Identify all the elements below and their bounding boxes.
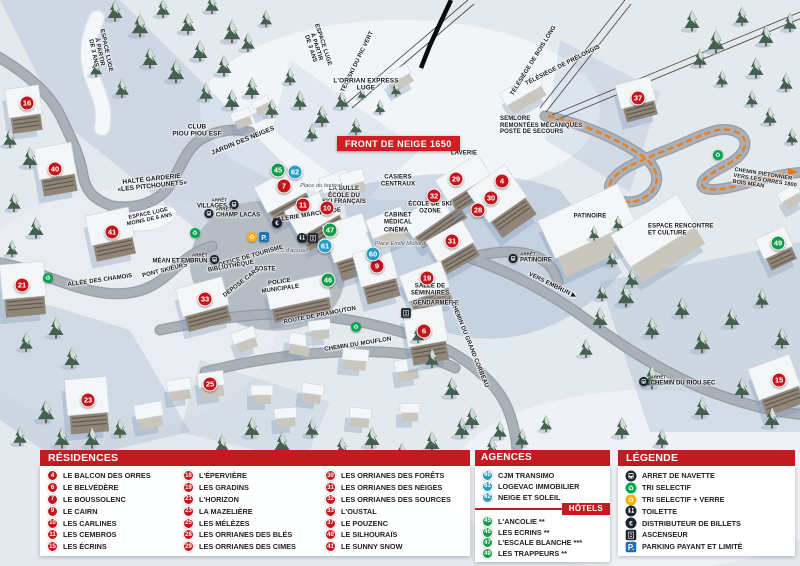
residence-label: LES ÉCRINS <box>63 542 107 551</box>
agence-row-62: 62NEIGE ET SOLEIL <box>482 492 603 503</box>
map-marker-30[interactable]: 30 <box>484 191 499 206</box>
agence-label: LOGEVAC IMMOBILIER <box>498 482 579 491</box>
residences-column-0: 4LE BALCON DES ORRES6LE BELVÉDÈRE7LE BOU… <box>47 470 183 553</box>
residences-panel: RÉSIDENCES 4LE BALCON DES ORRES6LE BELVÉ… <box>40 450 470 556</box>
residence-label: L'HORIZON <box>199 495 239 504</box>
recycle-verre-icon <box>625 494 637 506</box>
hotel-row-47: 47L'ESCALE BLANCHE *** <box>482 537 603 548</box>
residence-number-badge: 40 <box>325 529 336 540</box>
legende-row-atm: DISTRIBUTEUR DE BILLETS <box>625 517 788 529</box>
residence-row-11: 11LES CEMBROS <box>47 529 183 541</box>
ascenseur-icon <box>625 529 637 541</box>
hotel-number-badge: 47 <box>482 537 493 548</box>
map-marker-21[interactable]: 21 <box>15 278 30 293</box>
hotel-row-46: 46LES ECRINS ** <box>482 527 603 538</box>
legende-row-bus: ARRET DE NAVETTE <box>625 470 788 482</box>
residence-label: LES ORRIANES DES BLÉS <box>199 530 292 539</box>
map-marker-46[interactable]: 46 <box>321 273 336 288</box>
residence-number-badge: 11 <box>47 529 58 540</box>
agences-hotels-panel: AGENCES IMMOBILIÈRES 60CJM TRANSIMO61LOG… <box>475 450 610 562</box>
map-marker-37[interactable]: 37 <box>631 91 646 106</box>
residence-label: LES CEMBROS <box>63 530 117 539</box>
residence-row-31: 31LES ORRIANES DES NEIGES <box>325 482 463 494</box>
residence-label: LA MAZELIÈRE <box>199 507 253 516</box>
map-marker-10[interactable]: 10 <box>320 201 335 216</box>
residence-row-40: 40LE SILHOURAÏS <box>325 529 463 541</box>
residence-label: L'ÉPERVIÈRE <box>199 471 247 480</box>
residences-column-2: 30LES ORRIANES DES FORÊTS31LES ORRIANES … <box>325 470 463 553</box>
atm-icon <box>625 517 637 529</box>
agence-number-badge: 61 <box>482 481 493 492</box>
legende-label: ARRET DE NAVETTE <box>642 471 715 480</box>
legende-panel-title: LÉGENDE <box>618 450 795 466</box>
legende-panel-body: ARRET DE NAVETTETRI SELECTIFTRI SELECTIF… <box>618 466 795 556</box>
residence-label: LES ORRIANES DES FORÊTS <box>341 471 444 480</box>
residence-row-41: 41LE SUNNY SNOW <box>325 541 463 553</box>
hotel-number-badge: 49 <box>482 548 493 559</box>
residence-label: LE BALCON DES ORRES <box>63 471 151 480</box>
residence-row-25: 25LES MÉLÈZES <box>183 517 325 529</box>
residence-row-6: 6LE BELVÉDÈRE <box>47 482 183 494</box>
toilette-icon <box>625 505 637 517</box>
legende-label: TRI SELECTIF + VERRE <box>642 495 725 504</box>
legende-row-recycle: TRI SELECTIF <box>625 482 788 494</box>
residence-label: LE POUZENC <box>341 519 388 528</box>
map-marker-15[interactable]: 15 <box>772 373 787 388</box>
residence-row-19: 19LES GRADINS <box>183 482 325 494</box>
hotel-row-45: 45L'ANCOLIE ** <box>482 516 603 527</box>
hotel-label: LES TRAPPEURS ** <box>498 549 567 558</box>
residence-number-badge: 29 <box>183 541 194 552</box>
residence-label: LES ORRIANES DES NEIGES <box>341 483 442 492</box>
agence-row-61: 61LOGEVAC IMMOBILIER <box>482 481 603 492</box>
map-marker-4[interactable]: 4 <box>495 174 510 189</box>
residence-label: LE BELVÉDÈRE <box>63 483 118 492</box>
residences-panel-title: RÉSIDENCES <box>40 450 470 466</box>
map-marker-47[interactable]: 47 <box>323 223 338 238</box>
residence-number-badge: 7 <box>47 494 58 505</box>
legende-row-parking: PARKING PAYANT ET LIMITÉ <box>625 541 788 553</box>
agences-panel-title: AGENCES IMMOBILIÈRES <box>475 450 610 466</box>
residence-label: LE SILHOURAÏS <box>341 530 397 539</box>
map-marker-60[interactable]: 60 <box>366 247 381 262</box>
residence-label: LE CAIRN <box>63 507 97 516</box>
agence-number-badge: 60 <box>482 470 493 481</box>
hotel-label: LES ECRINS ** <box>498 528 550 537</box>
map-marker-40[interactable]: 40 <box>48 162 63 177</box>
residence-row-21: 21L'HORIZON <box>183 494 325 506</box>
map-marker-45[interactable]: 45 <box>271 163 286 178</box>
map-marker-11[interactable]: 11 <box>296 198 311 213</box>
residence-number-badge: 37 <box>325 518 336 529</box>
residence-row-15: 15LES ÉCRINS <box>47 541 183 553</box>
hotel-row-49: 49LES TRAPPEURS ** <box>482 548 603 559</box>
agence-row-60: 60CJM TRANSIMO <box>482 470 603 481</box>
map-marker-61[interactable]: 61 <box>318 239 333 254</box>
residence-row-10: 10LES CARLINES <box>47 517 183 529</box>
residence-label: L'OUSTAL <box>341 507 377 516</box>
legende-label: TOILETTE <box>642 507 677 516</box>
residence-number-badge: 19 <box>183 482 194 493</box>
residence-number-badge: 41 <box>325 541 336 552</box>
legende-panel: LÉGENDE ARRET DE NAVETTETRI SELECTIFTRI … <box>618 450 795 556</box>
map-marker-25[interactable]: 25 <box>203 377 218 392</box>
residence-label: LE SUNNY SNOW <box>341 542 403 551</box>
residence-label: LES MÉLÈZES <box>199 519 250 528</box>
residence-row-23: 23LA MAZELIÈRE <box>183 505 325 517</box>
agence-number-badge: 62 <box>482 492 493 503</box>
map-marker-6[interactable]: 6 <box>417 324 432 339</box>
legende-row-recycle-verre: TRI SELECTIF + VERRE <box>625 494 788 506</box>
hotel-number-badge: 45 <box>482 516 493 527</box>
residence-row-32: 32LES ORRIANES DES SOURCES <box>325 494 463 506</box>
hotels-panel-title: HÔTELS <box>562 503 610 515</box>
map-marker-49[interactable]: 49 <box>771 236 786 251</box>
map-marker-23[interactable]: 23 <box>81 393 96 408</box>
legende-label: ASCENSEUR <box>642 530 688 539</box>
map-marker-7[interactable]: 7 <box>277 179 292 194</box>
residences-column-1: 16L'ÉPERVIÈRE19LES GRADINS21L'HORIZON23L… <box>183 470 325 553</box>
map-marker-31[interactable]: 31 <box>445 234 460 249</box>
hotels-divider: HÔTELS <box>475 504 610 515</box>
residence-number-badge: 4 <box>47 470 58 481</box>
map-marker-28[interactable]: 28 <box>471 203 486 218</box>
hotel-label: L'ANCOLIE ** <box>498 517 545 526</box>
map-marker-32[interactable]: 32 <box>427 189 442 204</box>
map-marker-62[interactable]: 62 <box>288 165 303 180</box>
residence-number-badge: 15 <box>47 541 58 552</box>
residence-label: LES ORRIANES DES SOURCES <box>341 495 451 504</box>
map-marker-16[interactable]: 16 <box>20 96 35 111</box>
bus-icon <box>625 470 637 482</box>
agence-label: NEIGE ET SOLEIL <box>498 493 560 502</box>
residences-panel-body: 4LE BALCON DES ORRES6LE BELVÉDÈRE7LE BOU… <box>40 466 470 556</box>
residence-number-badge: 31 <box>325 482 336 493</box>
agence-label: CJM TRANSIMO <box>498 471 554 480</box>
residence-row-28: 28LES ORRIANES DES BLÉS <box>183 529 325 541</box>
map-marker-41[interactable]: 41 <box>105 225 120 240</box>
hotel-label: L'ESCALE BLANCHE *** <box>498 538 582 547</box>
recycle-icon <box>625 482 637 494</box>
residence-row-37: 37LE POUZENC <box>325 517 463 529</box>
map-marker-33[interactable]: 33 <box>198 292 213 307</box>
residence-number-badge: 28 <box>183 529 194 540</box>
residence-number-badge: 21 <box>183 494 194 505</box>
residence-number-badge: 32 <box>325 494 336 505</box>
residence-row-29: 29LES ORRIANES DES CIMES <box>183 541 325 553</box>
residence-label: LES ORRIANES DES CIMES <box>199 542 296 551</box>
hotel-number-badge: 46 <box>482 527 493 538</box>
residence-row-33: 33L'OUSTAL <box>325 505 463 517</box>
residence-number-badge: 16 <box>183 470 194 481</box>
residence-row-7: 7LE BOUSSOLENC <box>47 494 183 506</box>
residence-row-16: 16L'ÉPERVIÈRE <box>183 470 325 482</box>
residence-number-badge: 25 <box>183 518 194 529</box>
residence-number-badge: 30 <box>325 470 336 481</box>
residence-number-badge: 9 <box>47 506 58 517</box>
map-marker-19[interactable]: 19 <box>420 271 435 286</box>
residence-label: LES GRADINS <box>199 483 249 492</box>
residence-number-badge: 33 <box>325 506 336 517</box>
residence-row-30: 30LES ORRIANES DES FORÊTS <box>325 470 463 482</box>
residence-row-4: 4LE BALCON DES ORRES <box>47 470 183 482</box>
legende-label: DISTRIBUTEUR DE BILLETS <box>642 519 741 528</box>
front-de-neige-banner: FRONT DE NEIGE 1650 <box>337 136 460 151</box>
legende-label: TRI SELECTIF <box>642 483 691 492</box>
resort-map-page: CLUB PIOU PIOU ESFJARDIN DES NEIGESHALTE… <box>0 0 800 566</box>
residence-number-badge: 10 <box>47 518 58 529</box>
parking-icon <box>625 541 637 553</box>
residence-number-badge: 23 <box>183 506 194 517</box>
residence-row-9: 9LE CAIRN <box>47 505 183 517</box>
map-marker-29[interactable]: 29 <box>449 172 464 187</box>
residence-label: LE BOUSSOLENC <box>63 495 126 504</box>
residence-label: LES CARLINES <box>63 519 117 528</box>
legende-row-toilette: TOILETTE <box>625 505 788 517</box>
residence-number-badge: 6 <box>47 482 58 493</box>
legende-label: PARKING PAYANT ET LIMITÉ <box>642 542 743 551</box>
legende-row-ascenseur: ASCENSEUR <box>625 529 788 541</box>
